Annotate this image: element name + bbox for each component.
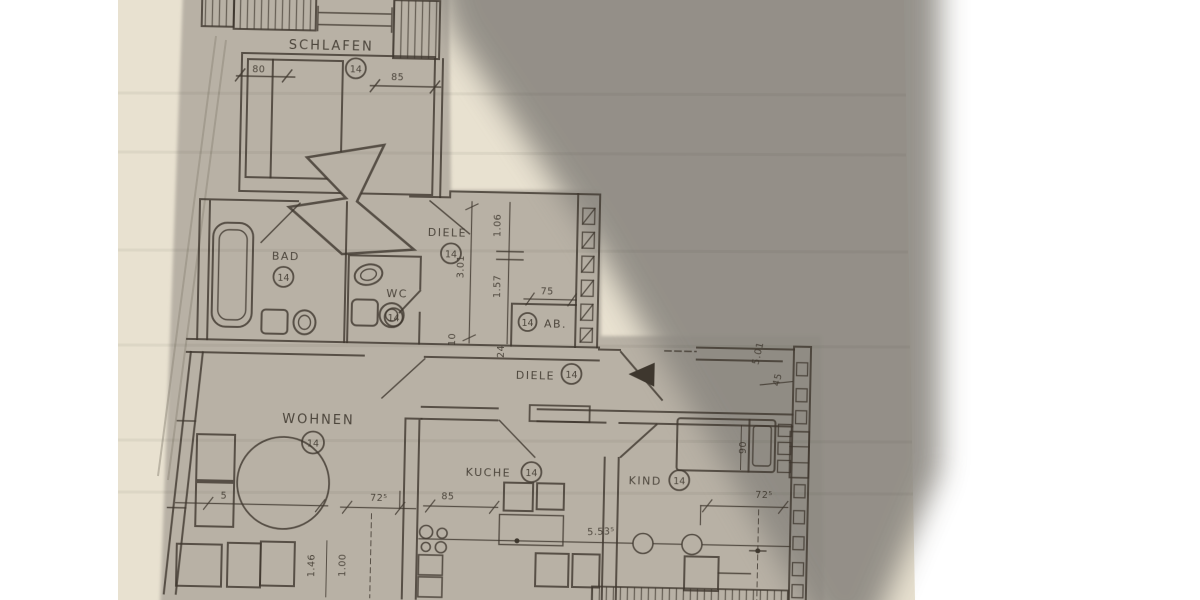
dim-80-label: 80: [252, 64, 265, 75]
dim-725-wohnen-label: 72⁵: [370, 493, 388, 504]
dim-5535-label: 5.53⁵: [587, 526, 615, 538]
dim-106-label: 1.06: [492, 214, 503, 237]
schlafen-badge: 14: [350, 64, 362, 75]
dim-100-label: 1.00: [337, 553, 348, 576]
floor-plan-photo: 80 85 SCHLAFEN 14 BAD: [0, 0, 1200, 600]
dim-157-label: 1.57: [492, 275, 503, 298]
kueche-label: KUCHE: [466, 466, 512, 480]
dim-725-kind-label: 72⁵: [755, 490, 773, 501]
floor-plan-drawing: 80 85 SCHLAFEN 14 BAD: [0, 0, 1200, 600]
wohnen-label: WOHNEN: [282, 412, 355, 429]
schlafen-label: SCHLAFEN: [289, 38, 374, 55]
entrance-dashed-wall: [665, 351, 696, 352]
wall-hatch-block: [234, 0, 317, 30]
diele-lower-label: DIELE: [516, 369, 556, 383]
kind-label: KIND: [629, 474, 662, 488]
dim-circle: [633, 533, 653, 553]
ab-badge: 14: [521, 318, 533, 329]
wc-badge: 14: [387, 313, 399, 324]
dim-75-label: 75: [541, 286, 554, 297]
dim-85-label: 85: [391, 72, 404, 83]
wall-hatch-block: [393, 0, 440, 59]
diele-upper-label: DIELE: [428, 226, 468, 240]
wall-hatch-block: [202, 0, 235, 27]
ab-label: AB.: [544, 317, 567, 330]
diele-lower-badge: 14: [565, 370, 577, 381]
kueche-badge: 14: [525, 468, 537, 479]
dim-301-label: 3.01: [455, 255, 466, 278]
wc-label: WC: [386, 287, 408, 300]
kind-badge: 14: [673, 476, 685, 487]
dim-circle: [682, 534, 702, 554]
bad-badge: 14: [277, 273, 289, 284]
dim-146-label: 1.46: [306, 554, 317, 577]
